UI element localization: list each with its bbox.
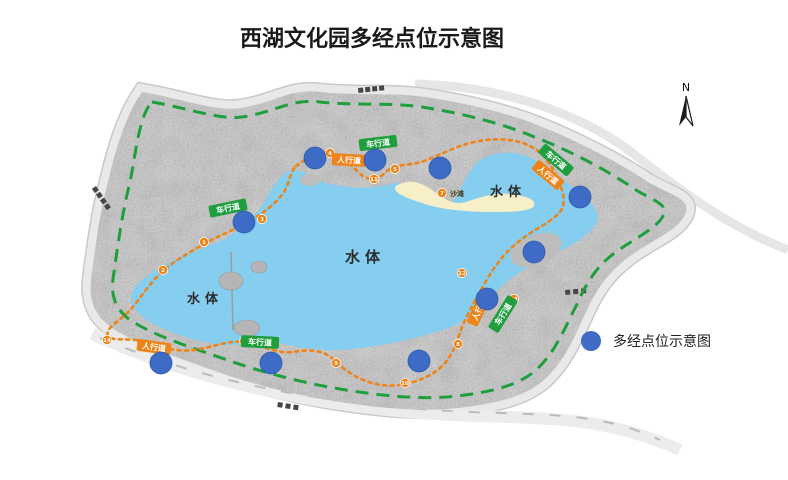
multi-business-point[interactable] (260, 352, 282, 374)
path-marker: 8 (453, 339, 462, 348)
multi-business-point[interactable] (150, 352, 172, 374)
svg-text:1: 1 (202, 240, 206, 246)
multi-business-point[interactable] (408, 350, 430, 372)
map-page: 1234567891011121314 车行道车行道车行道车行道车行道人行道人行… (0, 0, 788, 480)
svg-text:人行道: 人行道 (337, 154, 361, 165)
island (234, 320, 260, 336)
svg-text:4: 4 (328, 151, 332, 157)
svg-text:3: 3 (260, 217, 264, 223)
island (251, 261, 267, 273)
svg-text:车行道: 车行道 (248, 336, 272, 347)
vehicle-road-label: 车行道 (241, 335, 280, 349)
svg-text:9: 9 (334, 361, 338, 367)
beach-label: 沙滩 (450, 189, 464, 198)
path-marker: 7 (437, 188, 446, 197)
multi-business-point[interactable] (476, 288, 498, 310)
path-marker: 9 (331, 358, 340, 367)
multi-business-point[interactable] (429, 157, 451, 179)
svg-text:7: 7 (440, 191, 444, 197)
multi-business-point[interactable] (233, 211, 255, 233)
path-marker: 5 (390, 164, 399, 173)
svg-text:2: 2 (161, 268, 165, 274)
foot-path-label: 人行道 (332, 153, 367, 167)
water-label: 水体 (345, 248, 385, 266)
park-map: 1234567891011121314 车行道车行道车行道车行道车行道人行道人行… (0, 0, 788, 480)
path-marker: 1 (199, 237, 208, 246)
svg-text:12: 12 (458, 271, 466, 277)
svg-text:5: 5 (393, 167, 397, 173)
path-marker: 2 (158, 265, 167, 274)
path-marker: 12 (457, 268, 466, 277)
multi-business-point[interactable] (523, 241, 545, 263)
multi-business-point[interactable] (304, 147, 326, 169)
multi-business-point[interactable] (569, 186, 591, 208)
water-label: 水体 (490, 184, 526, 200)
compass-label: N (682, 81, 690, 94)
svg-text:11: 11 (370, 177, 378, 183)
path-marker: 14 (102, 335, 111, 344)
legend-label: 多经点位示意图 (613, 333, 711, 350)
cape (300, 174, 320, 186)
path-marker: 10 (400, 378, 409, 387)
water-label: 水体 (187, 291, 223, 307)
svg-text:14: 14 (103, 338, 111, 344)
island (219, 272, 243, 290)
page-title: 西湖文化园多经点位示意图 (240, 26, 504, 52)
path-marker: 3 (257, 214, 266, 223)
svg-text:10: 10 (401, 381, 409, 387)
legend-point-icon (581, 331, 601, 351)
svg-text:8: 8 (456, 342, 460, 348)
multi-business-point[interactable] (364, 149, 386, 171)
path-marker: 11 (369, 174, 378, 183)
